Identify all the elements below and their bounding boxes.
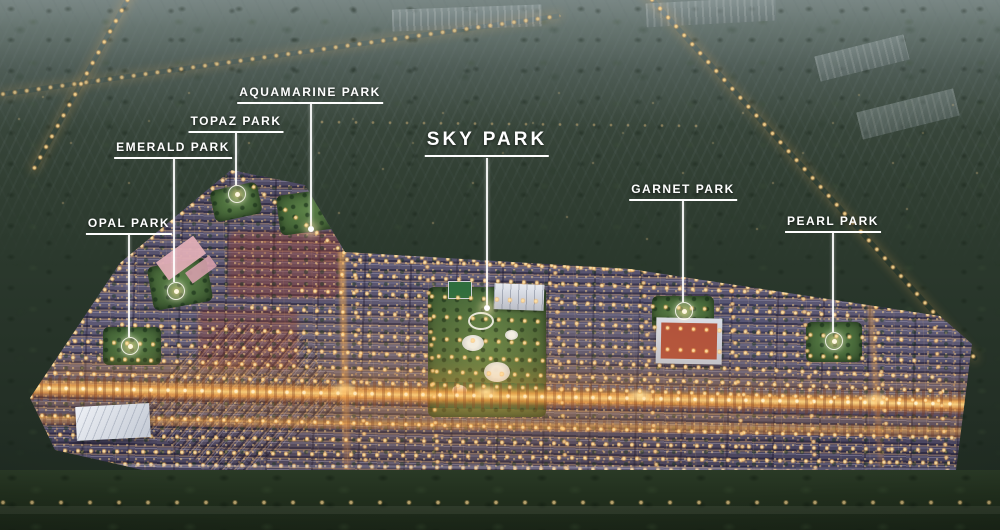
leader-line-sky (486, 158, 488, 305)
label-aquamarine-park[interactable]: AQUAMARINE PARK (237, 86, 383, 104)
leader-line-opal (128, 235, 130, 337)
park-marker-garnet (675, 302, 693, 320)
park-marker-aquamarine (308, 226, 314, 232)
park-marker-emerald (167, 282, 185, 300)
school-building-west (75, 403, 151, 441)
park-marker-opal (121, 337, 139, 355)
perimeter-road (0, 506, 1000, 514)
leader-line-topaz (235, 133, 237, 185)
leader-line-pearl (832, 233, 834, 332)
scattered-house-lights (0, 0, 2, 2)
park-marker-topaz (228, 185, 246, 203)
label-pearl-park[interactable]: PEARL PARK (785, 215, 881, 233)
leader-line-aquamarine (310, 104, 312, 226)
label-emerald-park[interactable]: EMERALD PARK (114, 141, 232, 159)
label-garnet-park[interactable]: GARNET PARK (629, 183, 737, 201)
leader-line-emerald (173, 159, 175, 282)
label-topaz-park[interactable]: TOPAZ PARK (188, 115, 283, 133)
master-plan-render: OPAL PARK EMERALD PARK TOPAZ PARK AQUAMA… (0, 0, 1000, 530)
label-sky-park[interactable]: SKY PARK (425, 130, 549, 157)
park-marker-sky (484, 305, 490, 311)
label-opal-park[interactable]: OPAL PARK (86, 217, 172, 235)
park-marker-pearl (825, 332, 843, 350)
foreground-trees (0, 470, 1000, 530)
leader-line-garnet (682, 201, 684, 302)
perimeter-road-lights (0, 500, 1000, 505)
